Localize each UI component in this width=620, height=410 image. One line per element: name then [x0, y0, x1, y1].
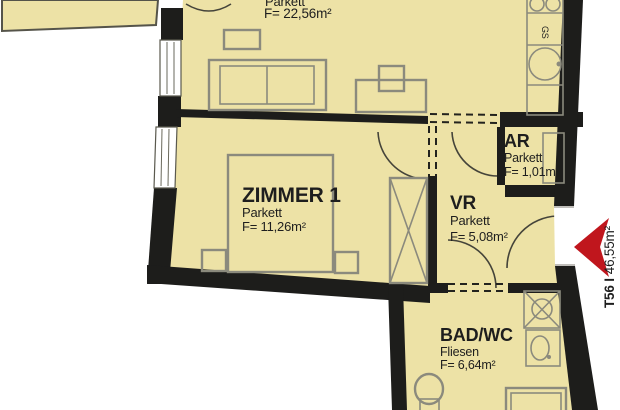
wall-segment	[428, 283, 448, 293]
living-area-label: F= 22,56m²	[264, 6, 332, 21]
entrance-label: T56 I46,55m²	[602, 225, 617, 308]
unit-number-label: T56 I	[602, 278, 617, 308]
window-2	[154, 127, 177, 188]
entrance-opening	[554, 206, 575, 266]
zimmer1-floor-label: Parkett	[242, 205, 282, 220]
bad-name-label: BAD/WC	[440, 325, 513, 345]
window-1	[160, 40, 181, 96]
faucet-dot	[557, 62, 562, 67]
dishwasher-label: GS	[540, 26, 550, 39]
ar-floor-label: Parkett	[504, 151, 543, 165]
total-area-label: 46,55m²	[602, 225, 617, 274]
dishwasher-label-group: GS	[540, 26, 550, 39]
entrance-label-group: T56 I46,55m²	[602, 225, 617, 308]
floorplan: GS T56 I46,55m²	[0, 0, 620, 410]
bad-area-label: F= 6,64m²	[440, 358, 496, 372]
zimmer1-area-label: F= 11,26m²	[242, 219, 307, 234]
ar-area-label: F= 1,01m²	[504, 165, 560, 179]
bad-floor-label: Fliesen	[440, 345, 479, 359]
wall-segment	[428, 176, 437, 290]
floorplan-svg: GS T56 I46,55m²	[0, 0, 620, 410]
vr-floor-label: Parkett	[450, 213, 490, 228]
zimmer1-name-label: ZIMMER 1	[242, 184, 341, 207]
wall-segment	[161, 8, 183, 40]
balcony-floor	[2, 0, 158, 31]
ar-name-label: AR	[504, 131, 530, 151]
vr-area-label: F= 5,08m²	[450, 229, 509, 244]
vr-name-label: VR	[450, 193, 476, 214]
